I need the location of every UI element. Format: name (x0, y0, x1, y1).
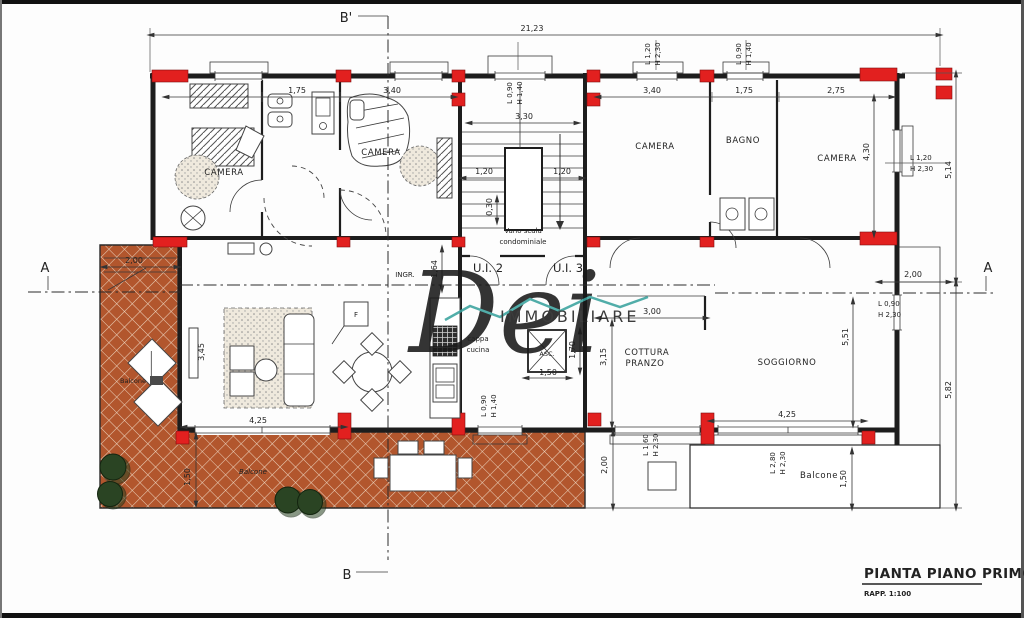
stair-direction-arrow (556, 221, 564, 230)
plan-title: PIANTA PIANO PRIMO (864, 566, 1024, 582)
dim-right-low: 5,82 (944, 381, 953, 399)
label-cottura-2: PRANZO (626, 359, 665, 369)
dim-stair-s: 0,30 (485, 198, 494, 216)
dim-ru3: 2,75 (827, 86, 845, 95)
label-ingresso: INGR. (395, 271, 415, 279)
dim-stair-l: 1,20 (475, 167, 493, 176)
door-d2-l: L 2,80 (769, 452, 777, 474)
marker-b-top: B' (340, 11, 353, 26)
dim-right-balc-h: 1,50 (839, 470, 848, 488)
win-r1-h: H 2,30 (910, 165, 933, 173)
win-w1-l: L 1,20 (644, 43, 652, 65)
dim-cott-w: 3,00 (643, 307, 661, 316)
watermark-word: IMMOBILIARE (500, 307, 639, 326)
door-d2-h: H 2,30 (779, 451, 787, 474)
dim-liv-w: 4,25 (249, 416, 267, 425)
label-cappa-2: cucina (467, 346, 490, 354)
dim-right-up: 5,14 (944, 161, 953, 179)
window-living (195, 425, 330, 435)
dim-overall: 21,23 (521, 24, 544, 33)
label-fridge: F (354, 311, 358, 319)
floorplan-page: 21,23 1,75 3,40 3,40 1,75 2,75 3,30 1,20… (0, 0, 1024, 618)
title-block: PIANTA PIANO PRIMO RAPP. 1:100 (862, 566, 1024, 598)
label-camera2: CAMERA (361, 148, 400, 158)
label-vano-scala-2: condominiale (500, 238, 547, 246)
dim-sogg-h: 5,51 (841, 328, 850, 346)
label-ascensore: ASC. (539, 350, 554, 358)
dim-right-balc: 2,00 (904, 270, 922, 279)
door-d1-h: H 2,30 (652, 433, 660, 456)
win-kit-l: L 0,90 (480, 395, 488, 417)
win-w1-h: H 2,30 (654, 42, 662, 65)
dim-sogg-w: 4,25 (778, 410, 796, 419)
dim-stair-w: 3,30 (515, 112, 533, 121)
balcony-right (585, 247, 940, 508)
win-r2-h: H 2,30 (878, 311, 901, 319)
dim-liv-h: 3,45 (197, 343, 206, 361)
label-camera3: CAMERA (635, 142, 674, 152)
win-w2-h: H 1,40 (745, 42, 753, 65)
window-stairs (488, 56, 552, 81)
win-stair-h: H 1,40 (516, 81, 524, 104)
window-camera2 (390, 62, 448, 81)
label-ui2: U.I. 2 (473, 261, 503, 275)
tv-console (228, 243, 254, 254)
marker-a-right: A (984, 261, 993, 276)
label-balcone-left: Balcone (120, 377, 146, 385)
win-kit-h: H 1,40 (490, 394, 498, 417)
win-r1-l: L 1,20 (910, 154, 932, 162)
door-d1-l: L 1,60 (642, 434, 650, 456)
lamp (260, 243, 272, 255)
label-soggiorno: SOGGIORNO (758, 358, 817, 368)
stairwell (462, 84, 583, 230)
label-ui3: U.I. 3 (553, 261, 583, 275)
bath-fixtures (268, 92, 334, 134)
wardrobe-2 (437, 138, 452, 198)
label-bagno: BAGNO (726, 136, 760, 146)
wardrobe (190, 84, 248, 108)
label-camera1: CAMERA (204, 168, 243, 178)
label-cappa-1: cappa (467, 335, 488, 343)
label-camera4: CAMERA (817, 154, 856, 164)
win-r2-l: L 0,90 (878, 300, 900, 308)
dim-ru1: 3,40 (643, 86, 661, 95)
rug-camera2 (400, 146, 440, 186)
coffee-table (230, 346, 254, 370)
label-cottura-1: COTTURA (625, 348, 670, 358)
window-camera1 (210, 62, 268, 81)
label-balcone-bottom: Balcone (239, 468, 267, 476)
lounge-seat (255, 359, 277, 381)
dim-ru2: 1,75 (735, 86, 753, 95)
dim-balcl-w: 2,00 (125, 256, 143, 265)
dim-balcl-h: 1,50 (183, 468, 192, 486)
floorplan-drawing: 21,23 1,75 3,40 3,40 1,75 2,75 3,30 1,20… (0, 0, 1024, 618)
dim-right-room: 4,30 (862, 143, 871, 161)
win-stair-l: L 0,90 (506, 82, 514, 104)
dining-table (333, 333, 412, 412)
label-balcone-right: Balcone (800, 471, 838, 481)
dim-cott-balc: 2,00 (600, 456, 609, 474)
side-table (150, 376, 163, 385)
sofa (284, 314, 314, 406)
dim-stair-r: 1,20 (553, 167, 571, 176)
bagno-fixtures (720, 198, 774, 230)
label-vano-scala-1: Vano scala (504, 227, 542, 235)
door-soggiorno-balcony (714, 425, 862, 445)
marker-a-left: A (41, 261, 50, 276)
dim-lu2: 3,40 (383, 86, 401, 95)
marker-b-bottom: B (343, 568, 352, 583)
dim-lu1: 1,75 (288, 86, 306, 95)
win-w2-l: L 0,90 (735, 43, 743, 65)
plan-scale: RAPP. 1:100 (864, 590, 911, 598)
